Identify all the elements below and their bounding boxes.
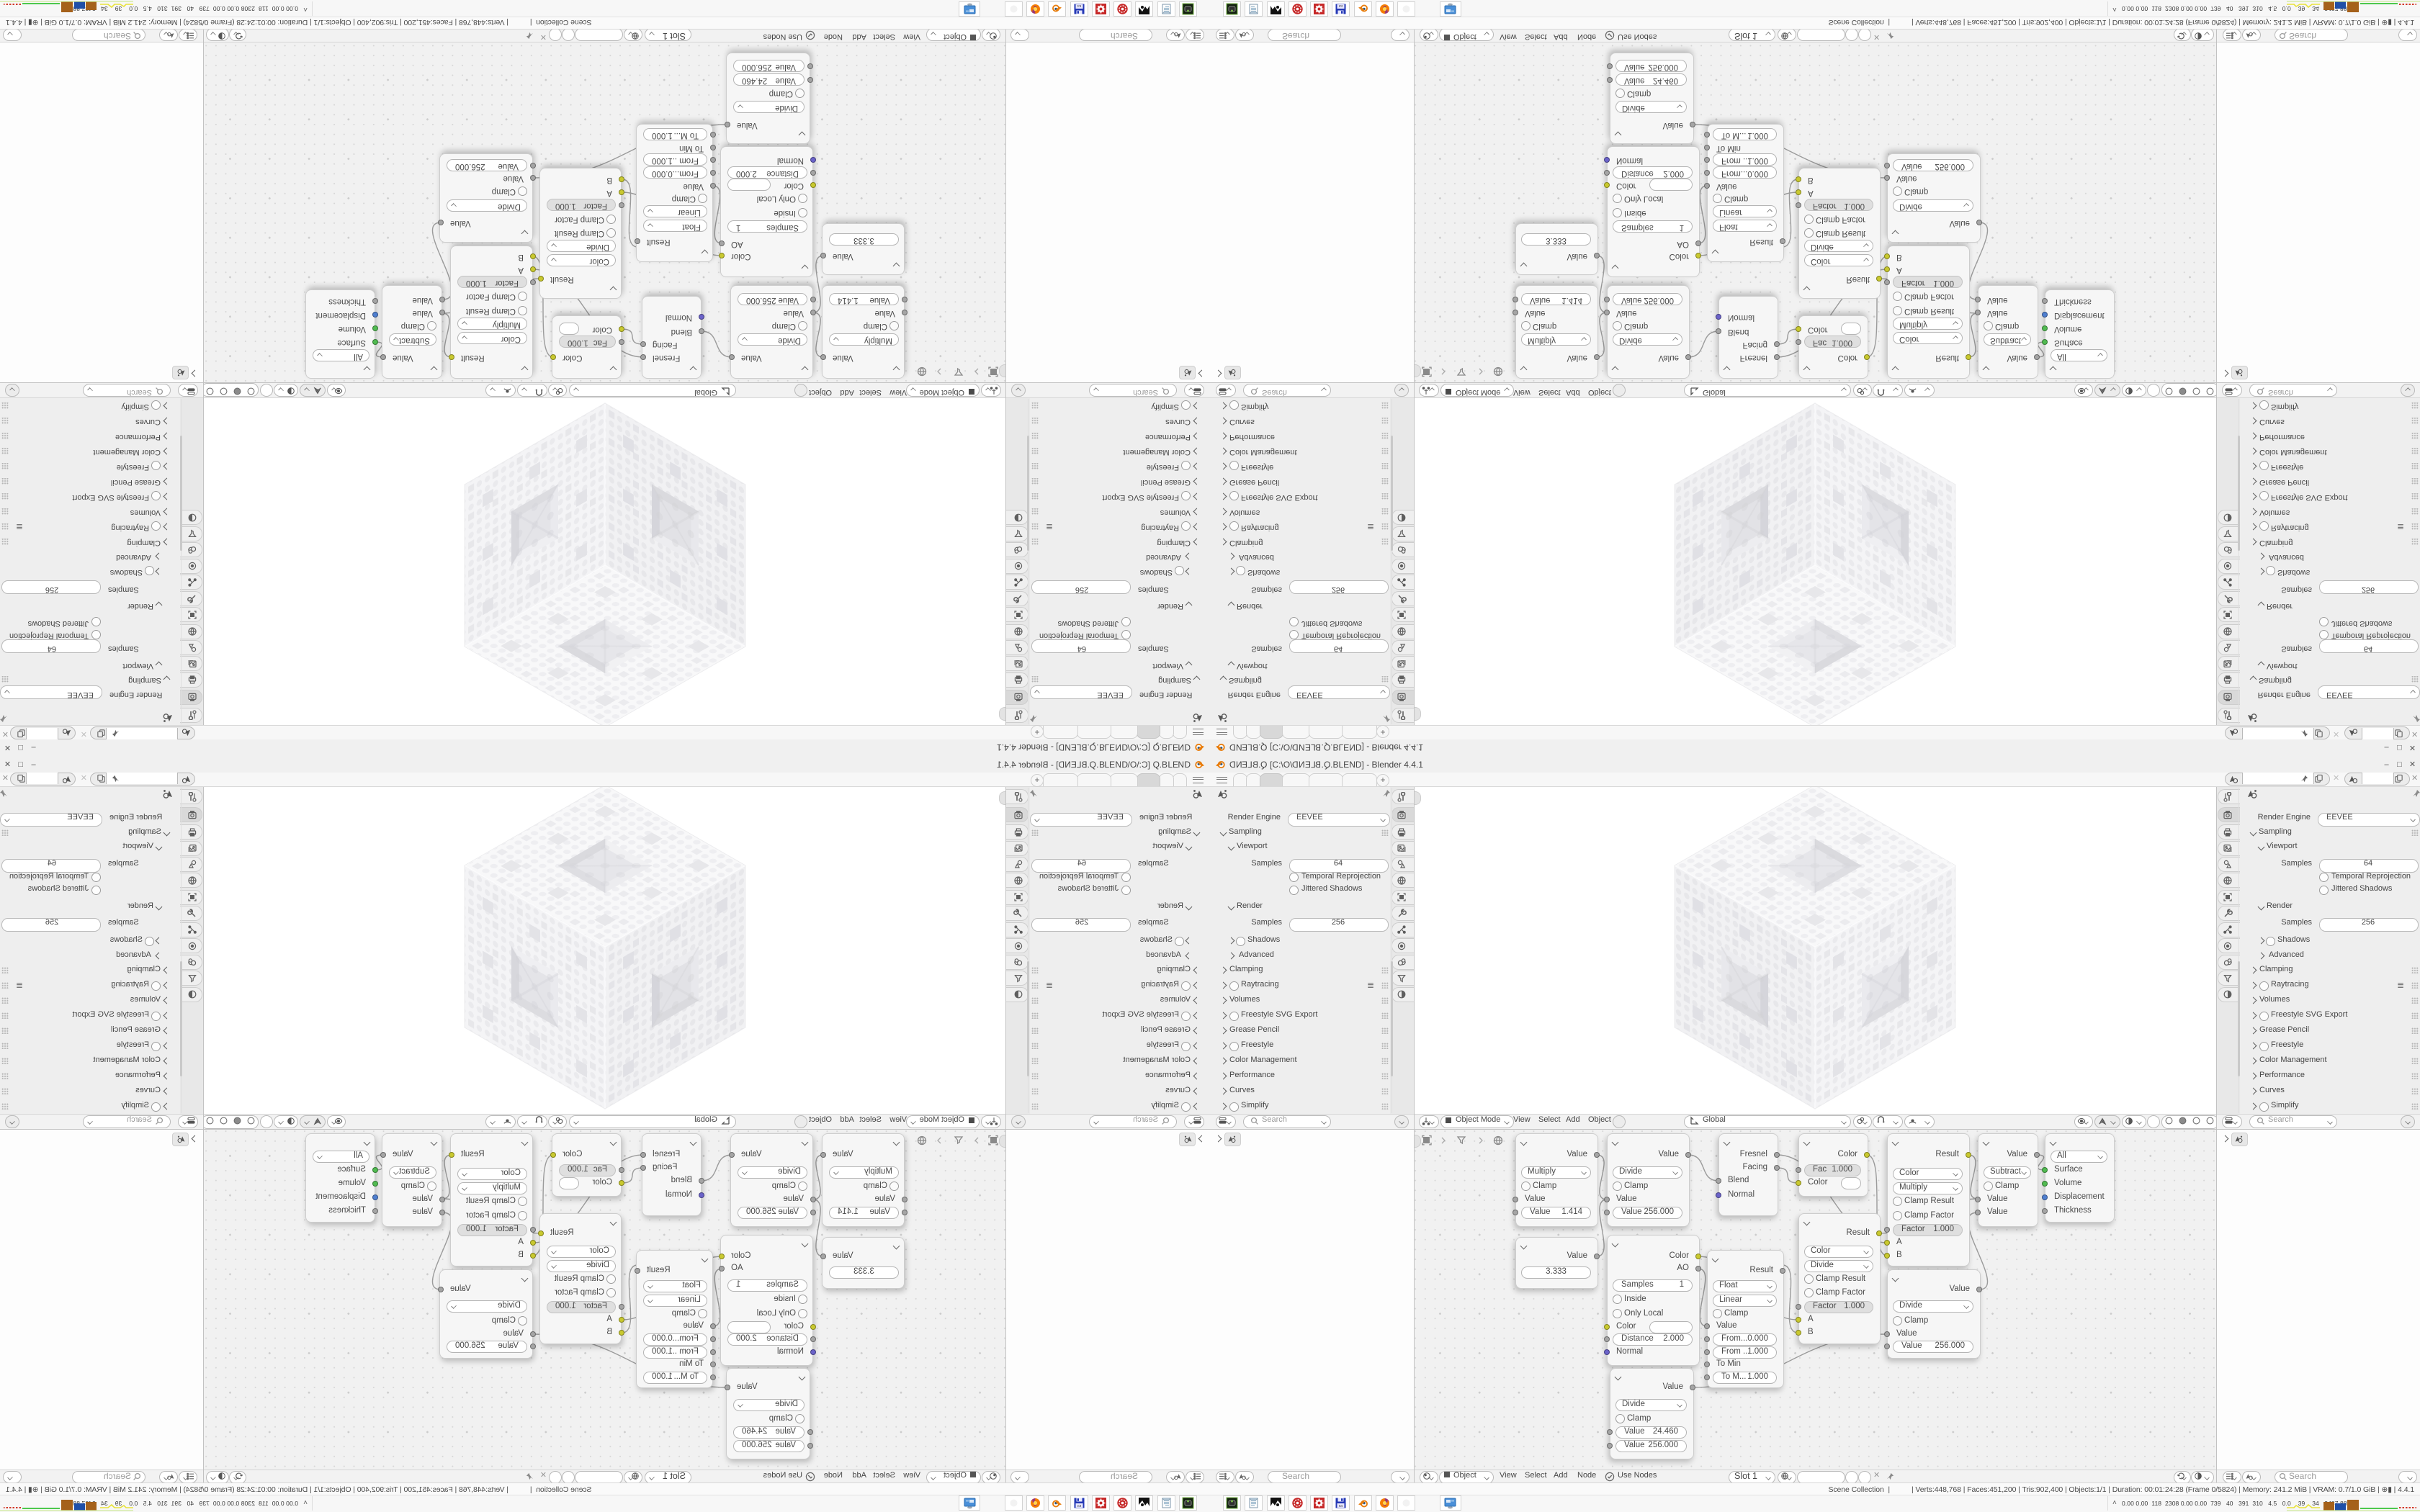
svg-text:64: 64 bbox=[1077, 4, 1082, 8]
svg-text:64: 64 bbox=[1339, 1504, 1343, 1508]
svg-text:64: 64 bbox=[1339, 4, 1343, 8]
svg-text:64: 64 bbox=[1077, 1504, 1082, 1508]
